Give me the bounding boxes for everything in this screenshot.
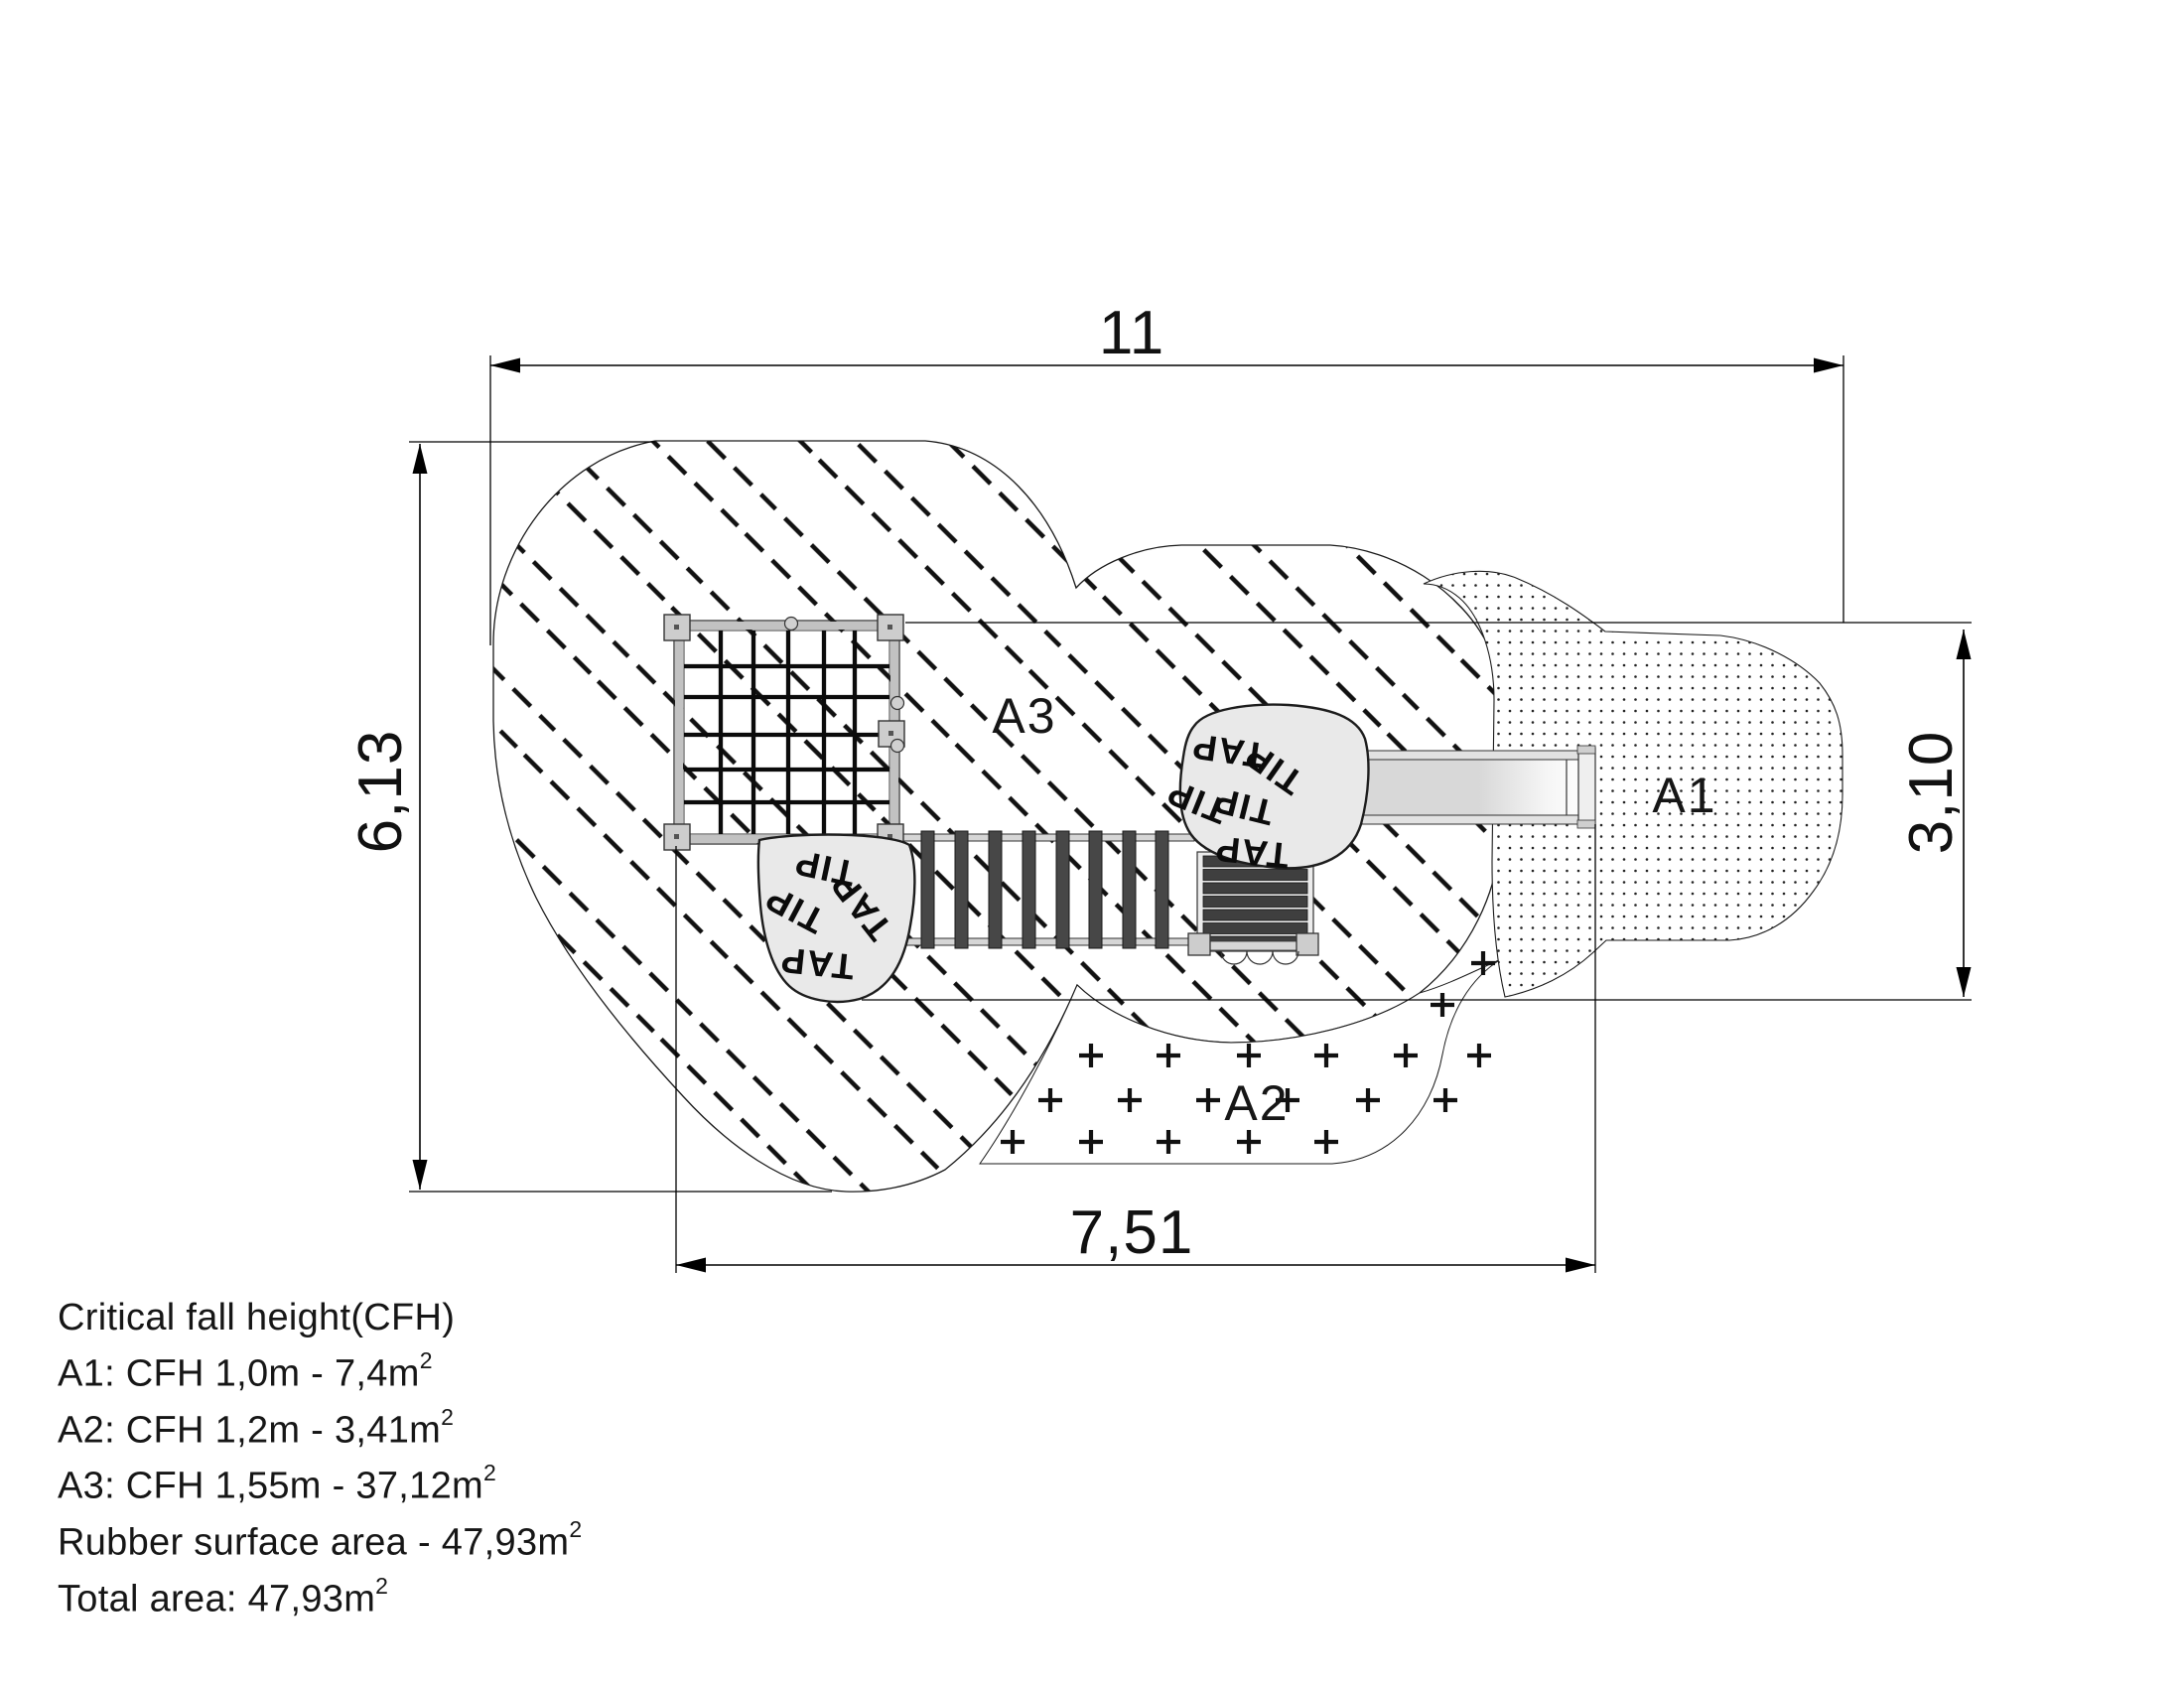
- label-area-a2: A2: [1224, 1075, 1289, 1131]
- note-a1: A1: CFH 1,0m - 7,4m2: [58, 1341, 582, 1398]
- label-area-a1: A1: [1652, 768, 1716, 823]
- stair-post-left: [1188, 933, 1210, 955]
- superscript: 2: [483, 1460, 496, 1485]
- slide-end-cap: [1578, 748, 1595, 826]
- logo-word: TAP: [777, 939, 856, 988]
- note-total-area: Total area: 47,93m2: [58, 1567, 582, 1623]
- dim-label-right-height: 3,10: [1897, 731, 1966, 855]
- ladder-rail-bottom: [903, 938, 1194, 945]
- note-a2: A2: CFH 1,2m - 3,41m2: [58, 1398, 582, 1455]
- label-area-a3: A3: [992, 688, 1056, 744]
- slide-rail-bottom: [1362, 815, 1594, 824]
- slide-rail-top: [1362, 751, 1594, 760]
- logo-word: TAP: [1212, 828, 1291, 877]
- ladder-rail-top: [903, 834, 1194, 841]
- tiptap-panel-1: TIP TIP TAP TAP: [757, 835, 914, 1002]
- slide: [1362, 746, 1595, 828]
- cfh-notes: Critical fall height(CFH) A1: CFH 1,0m -…: [58, 1295, 582, 1622]
- superscript: 2: [569, 1516, 582, 1542]
- dim-label-left-height: 6,13: [346, 730, 415, 854]
- notes-title: Critical fall height(CFH): [58, 1295, 582, 1341]
- superscript: 2: [420, 1347, 433, 1373]
- superscript: 2: [441, 1404, 454, 1430]
- dim-label-bottom-width: 7,51: [1070, 1198, 1194, 1267]
- superscript: 2: [375, 1573, 388, 1599]
- note-rubber-area: Rubber surface area - 47,93m2: [58, 1510, 582, 1567]
- slide-bed: [1362, 760, 1586, 815]
- stair-post-right: [1297, 933, 1318, 955]
- dim-label-top-width: 11: [1099, 299, 1164, 367]
- note-a3: A3: CFH 1,55m - 37,12m2: [58, 1454, 582, 1510]
- playground-safety-plan: TIP TIP TAP TAP TAP TIP TIP TIP TAP: [0, 0, 2184, 1688]
